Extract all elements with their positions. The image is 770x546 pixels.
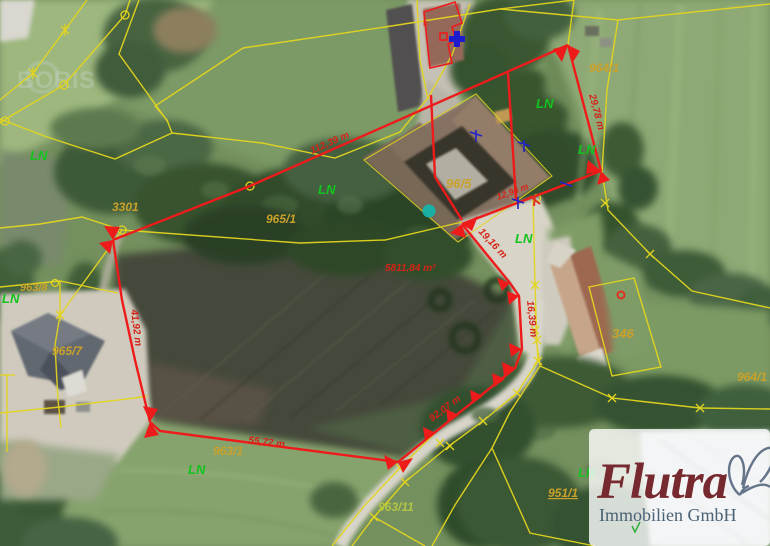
svg-text:5811,84 m²: 5811,84 m²	[385, 263, 436, 274]
svg-text:963/1: 963/1	[213, 444, 243, 458]
svg-text:LN: LN	[515, 231, 533, 246]
svg-text:LN: LN	[318, 182, 336, 197]
svg-text:96/5: 96/5	[446, 176, 472, 191]
svg-text:LN: LN	[578, 142, 596, 157]
svg-text:LN: LN	[2, 291, 20, 306]
svg-text:Flutra: Flutra	[596, 454, 728, 510]
svg-text:LN: LN	[188, 462, 206, 477]
svg-text:965/1: 965/1	[266, 212, 296, 226]
svg-text:b: b	[423, 18, 428, 28]
svg-text:963/8: 963/8	[20, 282, 48, 294]
svg-text:LN: LN	[536, 96, 554, 111]
svg-text:3301: 3301	[112, 200, 139, 214]
svg-text:964/1: 964/1	[737, 370, 767, 384]
svg-text:LN: LN	[30, 148, 48, 163]
svg-text:964/1: 964/1	[589, 61, 619, 75]
svg-text:963/11: 963/11	[378, 500, 414, 514]
svg-text:951/1: 951/1	[548, 486, 578, 500]
svg-text:965/7: 965/7	[52, 344, 83, 358]
svg-text:346: 346	[612, 326, 634, 341]
svg-text:Immobilien GmbH: Immobilien GmbH	[599, 505, 737, 525]
